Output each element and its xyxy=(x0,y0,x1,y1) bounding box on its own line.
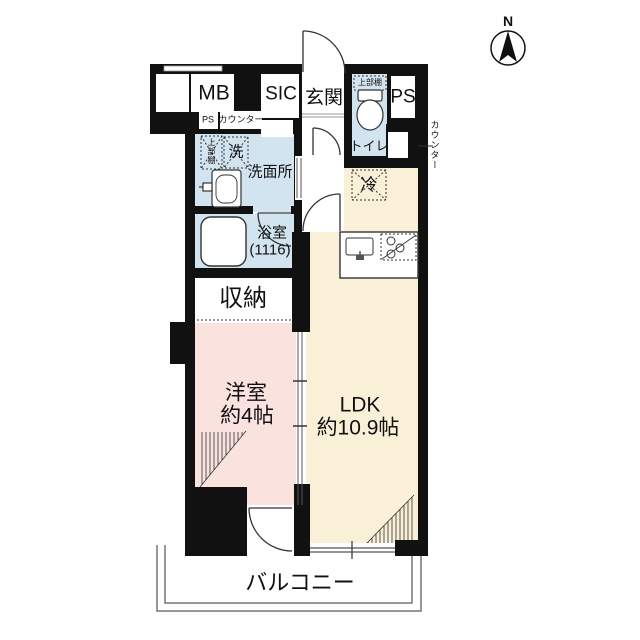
room-label-ldk: LDK xyxy=(340,395,381,416)
balcony-door-gap xyxy=(247,540,294,556)
room-label-mb: MB xyxy=(198,83,230,104)
room-label-counter-small: カウンター xyxy=(218,116,263,125)
bathtub-icon xyxy=(201,217,246,266)
compass-north-icon xyxy=(491,31,525,65)
room-label-bathroom-size: (1116) xyxy=(249,243,290,258)
label-upper-shelf-toilet: 上部棚 xyxy=(358,79,382,87)
kitchen-counter xyxy=(340,232,418,278)
room-label-balcony: バルコニー xyxy=(245,572,355,594)
room-label-storage: 収納 xyxy=(219,287,267,311)
room-label-ps-small: PS xyxy=(202,116,214,125)
room-label-genkan: 玄関 xyxy=(305,89,343,108)
label-counter-right: カウンター xyxy=(430,120,439,170)
mb-top-slot xyxy=(164,66,222,71)
room-label-ldk-size: 約10.9帖 xyxy=(317,418,400,439)
label-fridge: 冷 xyxy=(361,177,378,194)
label-washer: 洗 xyxy=(228,145,243,160)
floor-plan: N MB SIC 玄関 PS PS カウンター 上部棚 トイレ カウンター 上部… xyxy=(0,0,640,640)
room-label-western: 洋室 xyxy=(225,383,267,404)
room-label-western-size: 約4帖 xyxy=(220,406,274,427)
room-label-bathroom: 浴室 xyxy=(257,226,287,241)
sic-lower-box xyxy=(261,120,293,137)
compass-north-label: N xyxy=(503,14,513,28)
room-label-ps-top: PS xyxy=(390,88,415,107)
room-label-sic: SIC xyxy=(265,85,297,104)
washroom-sliding-door xyxy=(295,156,303,200)
label-upper-shelf-washroom: 上部棚 xyxy=(207,138,215,165)
room-label-washroom: 洗面所 xyxy=(247,165,292,180)
ldk-window xyxy=(310,541,395,559)
room-label-toilet: トイレ xyxy=(349,140,388,153)
toilet-counter-box xyxy=(388,132,408,158)
toilet-icon xyxy=(357,90,383,130)
